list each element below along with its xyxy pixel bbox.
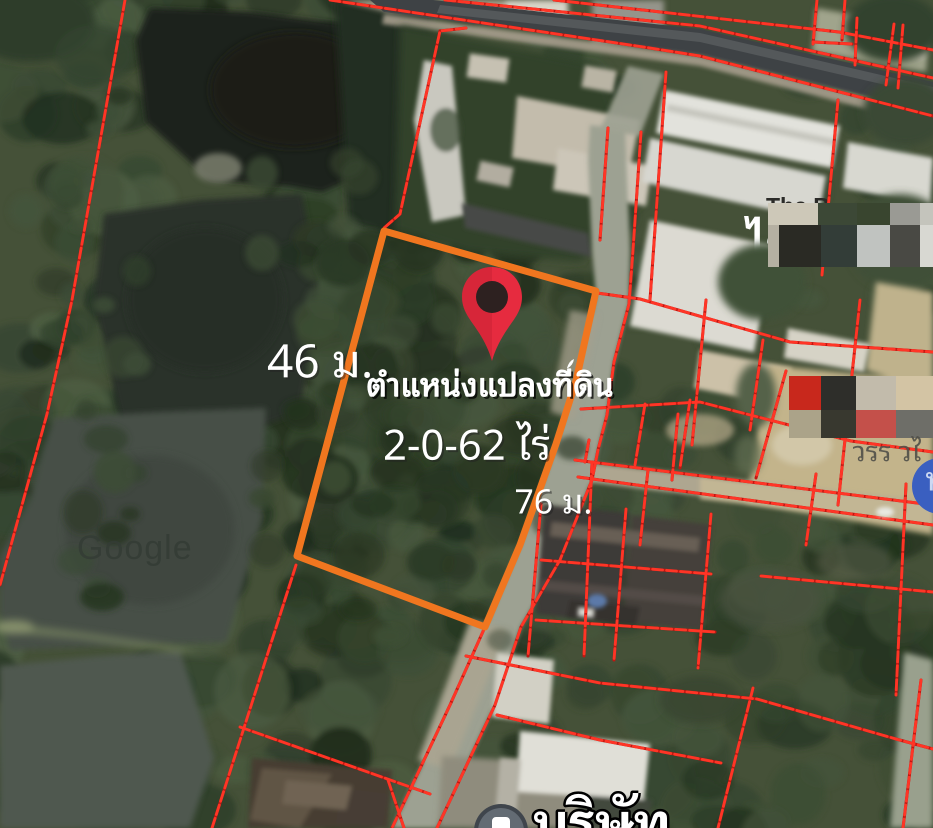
- svg-text:Google: Google: [77, 529, 193, 567]
